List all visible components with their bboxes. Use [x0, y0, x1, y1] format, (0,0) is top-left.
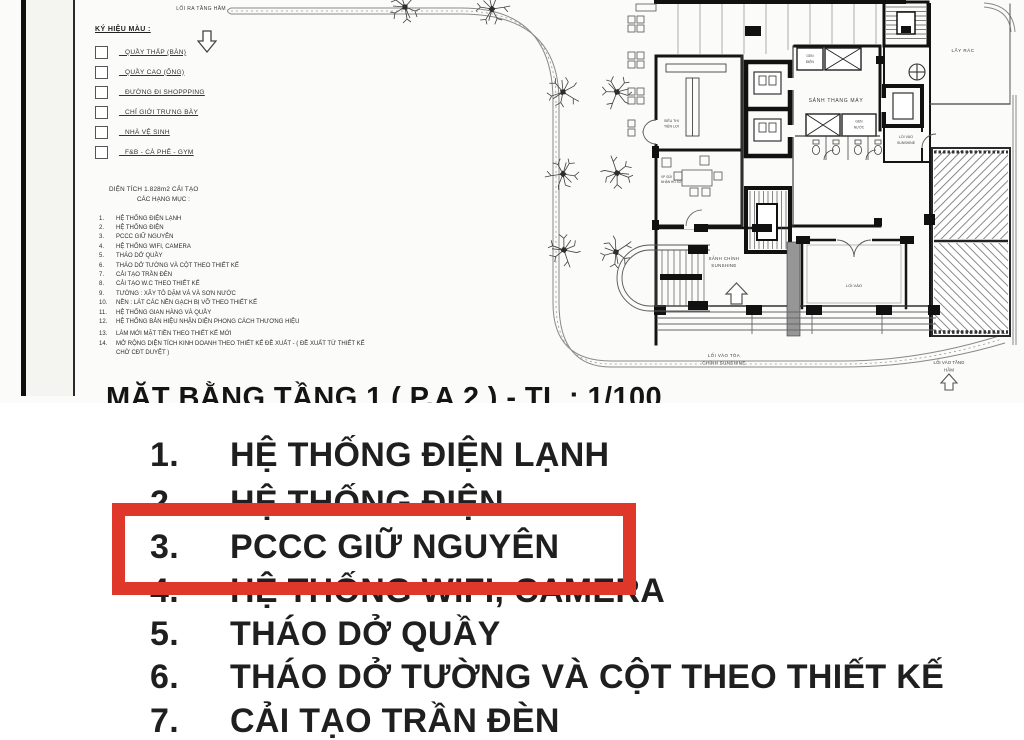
trash-label: LẤY RÁC	[951, 47, 974, 53]
scope-item-number: 12.	[99, 318, 116, 327]
zoom-list-item: 7. CẢI TẠO TRẦN ĐÈN	[150, 704, 560, 738]
trees	[390, 0, 638, 271]
stairwell	[746, 188, 790, 252]
legend-item-label: _ QUẦY THẤP (BÀN)	[119, 49, 186, 56]
scope-item-number: 6.	[99, 262, 116, 271]
legend-item: _ F&B - CÀ PHÊ - GYM	[95, 142, 205, 162]
lift-lobby-label: SẢNH THANG MÁY	[809, 97, 864, 104]
main-entry-label: CHÍNH SUNSHINE	[702, 361, 745, 366]
scope-item: 3. PCCC GIỮ NGUYÊN	[99, 233, 373, 242]
scope-item-text: HỆ THỐNG WIFI, CAMERA	[116, 243, 373, 252]
ramp-entry-arrow	[941, 374, 957, 390]
color-swatch	[95, 86, 108, 99]
sheet-border-line	[73, 0, 75, 396]
scope-item-number: 5.	[99, 252, 116, 261]
scope-item-text: HỆ THỐNG BẢN HIỆU NHẬN DIỆN PHONG CÁCH T…	[116, 318, 373, 327]
scope-item-text: HỆ THỐNG ĐIỆN LẠNH	[116, 215, 373, 224]
legend-item: _ QUẦY CAO (ỐNG)	[95, 62, 205, 82]
shop-door	[643, 120, 660, 144]
color-swatch	[95, 146, 108, 159]
drawing-sheet: LỐI RA TẦNG HẦM SIÊU THỊ TIỆN LỢI VP GỬI…	[0, 0, 1024, 403]
zoom-list-item: 5. THÁO DỞ QUẦY	[150, 617, 501, 651]
road-exit-label: LỐI RA TẦNG HẦM	[176, 5, 226, 12]
ramp-entry-label: LỐI VÀO TẦNG	[934, 360, 965, 365]
cafe-furniture	[628, 4, 656, 136]
scope-item-number: 11.	[99, 309, 116, 318]
gen-nuoc-label: GEN	[855, 120, 863, 124]
scope-item-number: 8.	[99, 280, 116, 289]
elevator-right	[881, 86, 922, 126]
scope-item-text: PCCC GIỮ NGUYÊN	[116, 233, 373, 242]
office-interior	[662, 156, 722, 229]
divider-wall	[787, 242, 800, 336]
scope-item-text: CẢI TẠO W.C THEO THIẾT KẾ	[116, 280, 373, 289]
color-swatch	[95, 126, 108, 139]
gen-dien-label: ĐIỆN	[806, 59, 814, 64]
legend-items: _ QUẦY THẤP (BÀN) _ QUẦY CAO (ỐNG) _ ĐƯỜ…	[95, 42, 205, 162]
scope-item: 2. HỆ THỐNG ĐIỆN	[99, 224, 373, 233]
color-legend: KÝ HIỆU MÀU : _ QUẦY THẤP (BÀN) _ QUẦY C…	[95, 26, 205, 162]
color-swatch	[95, 106, 108, 119]
zoom-item-text: THÁO DỞ TƯỜNG VÀ CỘT THEO THIẾT KẾ	[230, 660, 944, 694]
legend-item: _ QUẦY THẤP (BÀN)	[95, 42, 205, 62]
sheet-border-bar	[21, 0, 26, 396]
scope-item: 9. TƯỜNG : XÂY TÔ DẶM VÁ VÀ SƠN NƯỚC	[99, 290, 373, 299]
legend-item-label: _ NHÀ VỆ SINH	[119, 129, 170, 136]
scope-item: 14. MỞ RỘNG DIỆN TÍCH KINH DOANH THEO TH…	[99, 340, 373, 359]
scope-item: 12. HỆ THỐNG BẢN HIỆU NHẬN DIỆN PHONG CÁ…	[99, 318, 373, 327]
side-entry-label: SUNSHINE	[897, 141, 916, 145]
scope-item-text: LÀM MỚI MẶT TIỀN THEO THIẾT KẾ MỚI	[116, 330, 373, 339]
legend-title: KÝ HIỆU MÀU :	[95, 26, 205, 33]
zoom-list-item: 1. HỆ THỐNG ĐIỆN LẠNH	[150, 438, 609, 472]
scope-block: DIỆN TÍCH 1.828m2 CẢI TẠO CÁC HẠNG MỤC :…	[99, 186, 373, 359]
sheet-title: MẶT BẰNG TẦNG 1 ( P.A 2 ) - TL : 1/100	[106, 382, 662, 403]
scope-item-text: NỀN : LÁT CÁC NỀN GẠCH BỊ VỠ THEO THIẾT …	[116, 299, 373, 308]
entrance-arrow	[726, 283, 747, 304]
scope-item-text: THÁO DỞ TƯỜNG VÀ CỘT THEO THIẾT KẾ	[116, 262, 373, 271]
scope-item: 5. THÁO DỞ QUẦY	[99, 252, 373, 261]
ramp-entry-label: HẦM	[944, 368, 954, 373]
scope-item-text: THÁO DỞ QUẦY	[116, 252, 373, 261]
zoom-list-item: 6. THÁO DỞ TƯỜNG VÀ CỘT THEO THIẾT KẾ	[150, 660, 944, 694]
scope-item-number: 14.	[99, 340, 116, 359]
scope-item: 8. CẢI TẠO W.C THEO THIẾT KẾ	[99, 280, 373, 289]
scope-item-text: MỞ RỘNG DIỆN TÍCH KINH DOANH THEO THIẾT …	[116, 340, 373, 359]
gen-nuoc	[806, 114, 876, 136]
sheet-margin	[26, 0, 73, 396]
elevators	[746, 62, 794, 156]
zoom-item-number: 5.	[150, 617, 230, 651]
scope-item-number: 10.	[99, 299, 116, 308]
retail-room	[807, 236, 901, 303]
zoom-item-text: HỆ THỐNG ĐIỆN LẠNH	[230, 438, 609, 472]
scope-item: 10. NỀN : LÁT CÁC NỀN GẠCH BỊ VỠ THEO TH…	[99, 299, 373, 308]
scope-item-text: HỆ THỐNG GIAN HÀNG VÀ QUẦY	[116, 309, 373, 318]
store-label: SIÊU THỊ	[664, 118, 679, 123]
zoom-item-number: 7.	[150, 704, 230, 738]
main-hall-label: SẢNH CHÍNH	[709, 256, 740, 261]
scope-item-number: 2.	[99, 224, 116, 233]
zoom-item-text: THÁO DỞ QUẦY	[230, 617, 501, 651]
scope-item-text: TƯỜNG : XÂY TÔ DẶM VÁ VÀ SƠN NƯỚC	[116, 290, 373, 299]
scope-item-number: 13.	[99, 330, 116, 339]
scope-item: 1. HỆ THỐNG ĐIỆN LẠNH	[99, 215, 373, 224]
office-label: NHẬN HỒ SƠ	[661, 179, 682, 184]
zoom-item-number: 6.	[150, 660, 230, 694]
legend-item-label: _ CHỈ GIỚI TRƯNG BÀY	[119, 109, 198, 116]
main-entry-label: LỐI VÀO TÒA	[708, 353, 740, 358]
color-swatch	[95, 66, 108, 79]
legend-item-label: _ ĐƯỜNG ĐI SHOPPPING	[119, 89, 205, 96]
scope-item: 7. CẢI TẠO TRẦN ĐÈN	[99, 271, 373, 280]
gen-dien	[797, 48, 861, 70]
legend-item-label: _ F&B - CÀ PHÊ - GYM	[119, 149, 194, 156]
zoom-item-number: 1.	[150, 438, 230, 472]
legend-item: _ NHÀ VỆ SINH	[95, 122, 205, 142]
side-entry-label: LỐI VÀO	[899, 134, 913, 139]
zoom-item-text: CẢI TẠO TRẦN ĐÈN	[230, 704, 560, 738]
scope-item: 11. HỆ THỐNG GIAN HÀNG VÀ QUẦY	[99, 309, 373, 318]
stair-topright	[884, 2, 928, 46]
scope-item-text: CẢI TẠO TRẦN ĐÈN	[116, 271, 373, 280]
scope-item: 4. HỆ THỐNG WIFI, CAMERA	[99, 243, 373, 252]
scope-item-number: 3.	[99, 233, 116, 242]
scope-title: DIỆN TÍCH 1.828m2 CẢI TẠO	[109, 186, 373, 193]
shop-entry-label: LỐI VÀO	[846, 283, 862, 288]
scope-item-number: 9.	[99, 290, 116, 299]
gen-nuoc-label: NƯỚC	[854, 125, 865, 130]
main-hall-label: SUNSHINE	[711, 263, 736, 268]
gen-dien-label: GEN	[806, 54, 814, 58]
highlight-box	[112, 503, 636, 595]
scope-item-number: 1.	[99, 215, 116, 224]
store-label: TIỆN LỢI	[664, 124, 679, 129]
utility-fixture	[909, 64, 925, 80]
wc-fixtures	[795, 136, 882, 160]
legend-item: _ CHỈ GIỚI TRƯNG BÀY	[95, 102, 205, 122]
office-label: VP GỬI	[661, 174, 672, 179]
scope-item-text: HỆ THỐNG ĐIỆN	[116, 224, 373, 233]
scope-list: 1. HỆ THỐNG ĐIỆN LẠNH 2. HỆ THỐNG ĐIỆN 3…	[99, 215, 373, 359]
down-arrow-icon	[197, 30, 217, 54]
outdoor-stair	[617, 245, 710, 311]
scope-item-number: 7.	[99, 271, 116, 280]
scope-item: 6. THÁO DỞ TƯỜNG VÀ CỘT THEO THIẾT KẾ	[99, 262, 373, 271]
scope-item-number: 4.	[99, 243, 116, 252]
legend-item: _ ĐƯỜNG ĐI SHOPPPING	[95, 82, 205, 102]
legend-item-label: _ QUẦY CAO (ỐNG)	[119, 69, 184, 76]
scope-item: 13. LÀM MỚI MẶT TIỀN THEO THIẾT KẾ MỚI	[99, 330, 373, 339]
scope-subtitle: CÁC HẠNG MỤC :	[137, 196, 373, 203]
color-swatch	[95, 46, 108, 59]
